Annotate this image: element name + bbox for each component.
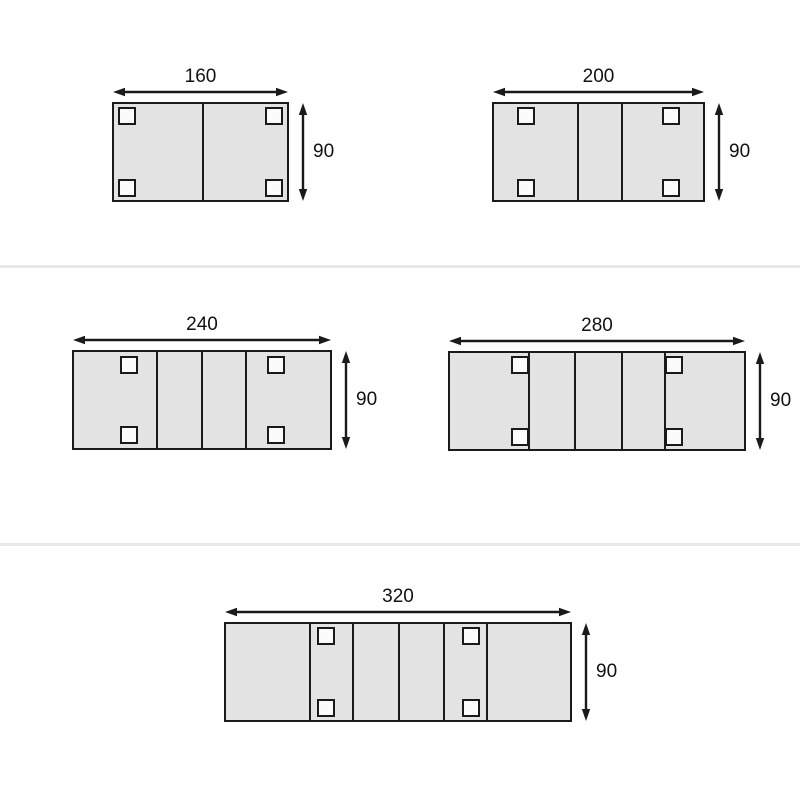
table-top-view [112, 102, 289, 202]
arrowhead-icon [559, 608, 571, 616]
width-dimension-label: 320 [224, 586, 572, 608]
table-leaf-divider-line [352, 622, 354, 722]
table-leaf-divider-line [398, 622, 400, 722]
table-leaf-divider-line [577, 102, 579, 202]
arrowhead-icon [715, 103, 723, 115]
arrowhead-icon [342, 351, 350, 363]
table-leg [317, 627, 335, 645]
height-dimension-label: 90 [596, 661, 617, 683]
table-leg [317, 699, 335, 717]
height-dimension-arrow [753, 351, 767, 451]
arrowhead-icon [299, 189, 307, 201]
arrowhead-icon [319, 336, 331, 344]
table-leg [120, 356, 138, 374]
height-dimension-arrow [712, 102, 726, 202]
table-leaf-divider-line [245, 350, 247, 450]
height-dimension-arrow [339, 350, 353, 450]
width-dimension-label: 160 [112, 66, 289, 88]
arrowhead-icon [299, 103, 307, 115]
table-leaf-divider-line [443, 622, 445, 722]
arrowhead-icon [582, 709, 590, 721]
table-leaf-divider-line [156, 350, 158, 450]
height-dimension-arrow [579, 622, 593, 722]
arrowhead-icon [449, 337, 461, 345]
table-leg [517, 179, 535, 197]
height-dimension-label: 90 [770, 390, 791, 412]
table-leaf-divider-line [621, 351, 623, 451]
table-leaf-divider-line [202, 102, 204, 202]
arrowhead-icon [342, 437, 350, 449]
arrowhead-icon [582, 623, 590, 635]
table-leg [118, 179, 136, 197]
table-leg [462, 627, 480, 645]
width-dimension-label: 200 [492, 66, 705, 88]
arrowhead-icon [276, 88, 288, 96]
height-dimension-arrow [296, 102, 310, 202]
arrowhead-icon [692, 88, 704, 96]
arrowhead-icon [756, 352, 764, 364]
table-leg [665, 356, 683, 374]
table-leg [511, 356, 529, 374]
table-leg [517, 107, 535, 125]
arrowhead-icon [715, 189, 723, 201]
table-leg [267, 356, 285, 374]
table-leg [118, 107, 136, 125]
table-leaf-divider-line [621, 102, 623, 202]
height-dimension-label: 90 [356, 389, 377, 411]
table-leg [267, 426, 285, 444]
arrowhead-icon [225, 608, 237, 616]
arrowhead-icon [756, 438, 764, 450]
row-separator-line [0, 265, 800, 268]
table-leaf-divider-line [574, 351, 576, 451]
table-leg [462, 699, 480, 717]
width-dimension-label: 280 [448, 315, 746, 337]
table-leg [265, 107, 283, 125]
table-leaf-divider-line [201, 350, 203, 450]
arrowhead-icon [73, 336, 85, 344]
height-dimension-label: 90 [313, 141, 334, 163]
table-leg [662, 179, 680, 197]
table-leaf-divider-line [486, 622, 488, 722]
table-leg [120, 426, 138, 444]
table-leg [662, 107, 680, 125]
diagram-canvas: 1609020090240902809032090 [0, 0, 800, 800]
table-leg [511, 428, 529, 446]
table-leg [665, 428, 683, 446]
arrowhead-icon [113, 88, 125, 96]
row-separator-line [0, 543, 800, 546]
width-dimension-label: 240 [72, 314, 332, 336]
arrowhead-icon [493, 88, 505, 96]
table-top-view [448, 351, 746, 451]
arrowhead-icon [733, 337, 745, 345]
height-dimension-label: 90 [729, 141, 750, 163]
table-leg [265, 179, 283, 197]
table-leaf-divider-line [309, 622, 311, 722]
